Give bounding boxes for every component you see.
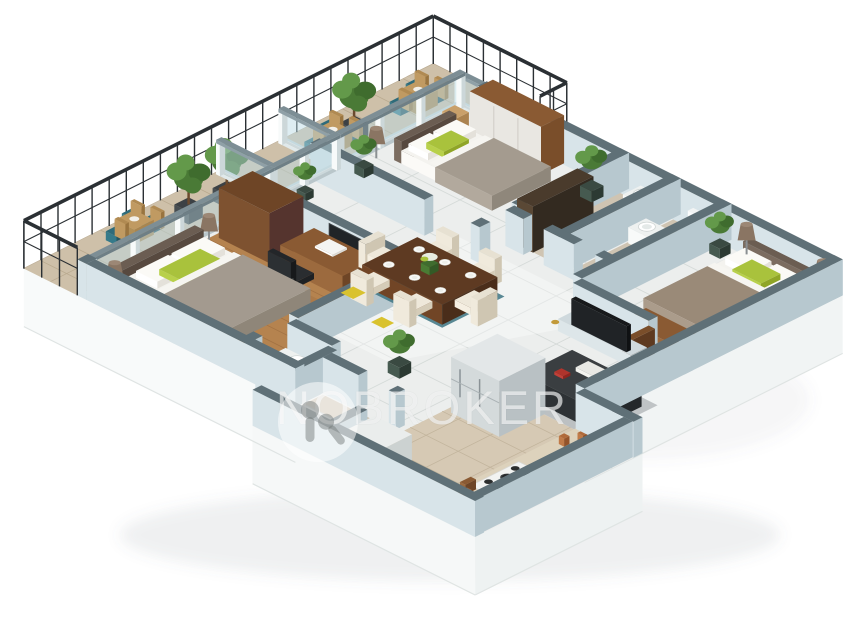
floorplan-3d-render: NOBROKER xyxy=(0,0,864,640)
floorplan-scene xyxy=(0,0,864,640)
